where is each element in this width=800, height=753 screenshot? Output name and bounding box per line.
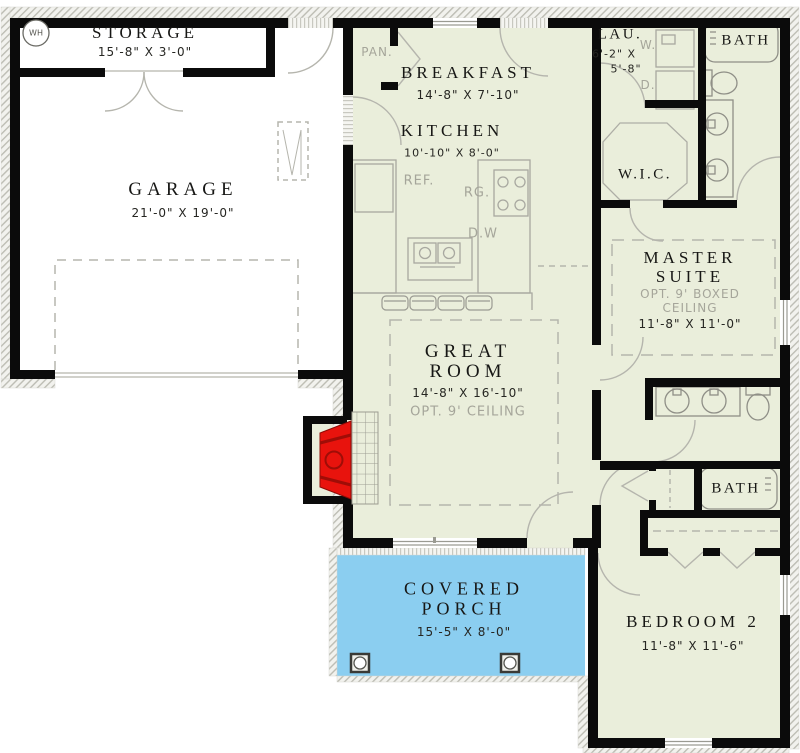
great-room-label-2: ROOM [429, 361, 506, 383]
garage-door-dashed [55, 260, 298, 370]
porch-label-1: COVERED [404, 579, 524, 600]
garage-label: GARAGE [128, 179, 237, 201]
bath-hall-label: BATH [711, 481, 760, 498]
master-label-1: MASTER [644, 248, 737, 268]
dishwasher-label: D.W [468, 227, 498, 242]
kitchen-label: KITCHEN [401, 121, 504, 141]
master-label-2: SUITE [656, 267, 724, 287]
great-room-dims: 14'-8" X 16'-10" [412, 386, 524, 400]
storage-label: STORAGE [92, 23, 198, 43]
laundry-dims-1: 6'-2" X [592, 48, 636, 61]
pantry-label: PAN. [361, 45, 392, 59]
refrigerator-label: REF. [404, 174, 435, 189]
range-label: RG. [464, 186, 490, 201]
great-room-label-1: GREAT [425, 341, 511, 363]
bedroom2-dims: 11'-8" X 11'-6" [642, 639, 745, 653]
master-ceiling-note-1: OPT. 9' BOXED [640, 287, 740, 301]
porch-dims: 15'-5" X 8'-0" [417, 625, 511, 639]
breakfast-label: BREAKFAST [401, 63, 535, 83]
laundry-label: LAU. [598, 27, 643, 44]
laundry-dims-2: 5'-8" [610, 63, 641, 76]
great-room-ceiling-note: OPT. 9' CEILING [410, 405, 526, 420]
garage-dims: 21'-0" X 19'-0" [132, 206, 235, 220]
floor-plan: WH STORAGE 15'-8" X 3'-0" GARAGE 21'-0" … [0, 0, 800, 753]
dryer-label: D. [640, 78, 655, 92]
storage-dims: 15'-8" X 3'-0" [98, 45, 192, 59]
master-dims: 11'-8" X 11'-0" [639, 317, 742, 331]
water-heater-label: WH [29, 29, 43, 38]
garage-service-door-arc [288, 28, 333, 73]
breakfast-dims: 14'-8" X 7'-10" [417, 88, 520, 102]
kitchen-dims: 10'-10" X 8'-0" [404, 147, 500, 160]
washer-label: W. [640, 38, 656, 52]
master-ceiling-note-2: CEILING [663, 301, 718, 315]
bath-top-label: BATH [721, 33, 770, 50]
bedroom2-label: BEDROOM 2 [626, 612, 760, 632]
attic-access-v [283, 130, 301, 175]
porch-label-2: PORCH [421, 599, 506, 620]
storage-door-right-arc [144, 72, 183, 111]
hearth-grid [352, 412, 378, 504]
storage-door-left-arc [105, 72, 144, 111]
wic-label: W.I.C. [618, 167, 672, 184]
garage-door-sill [55, 373, 298, 377]
